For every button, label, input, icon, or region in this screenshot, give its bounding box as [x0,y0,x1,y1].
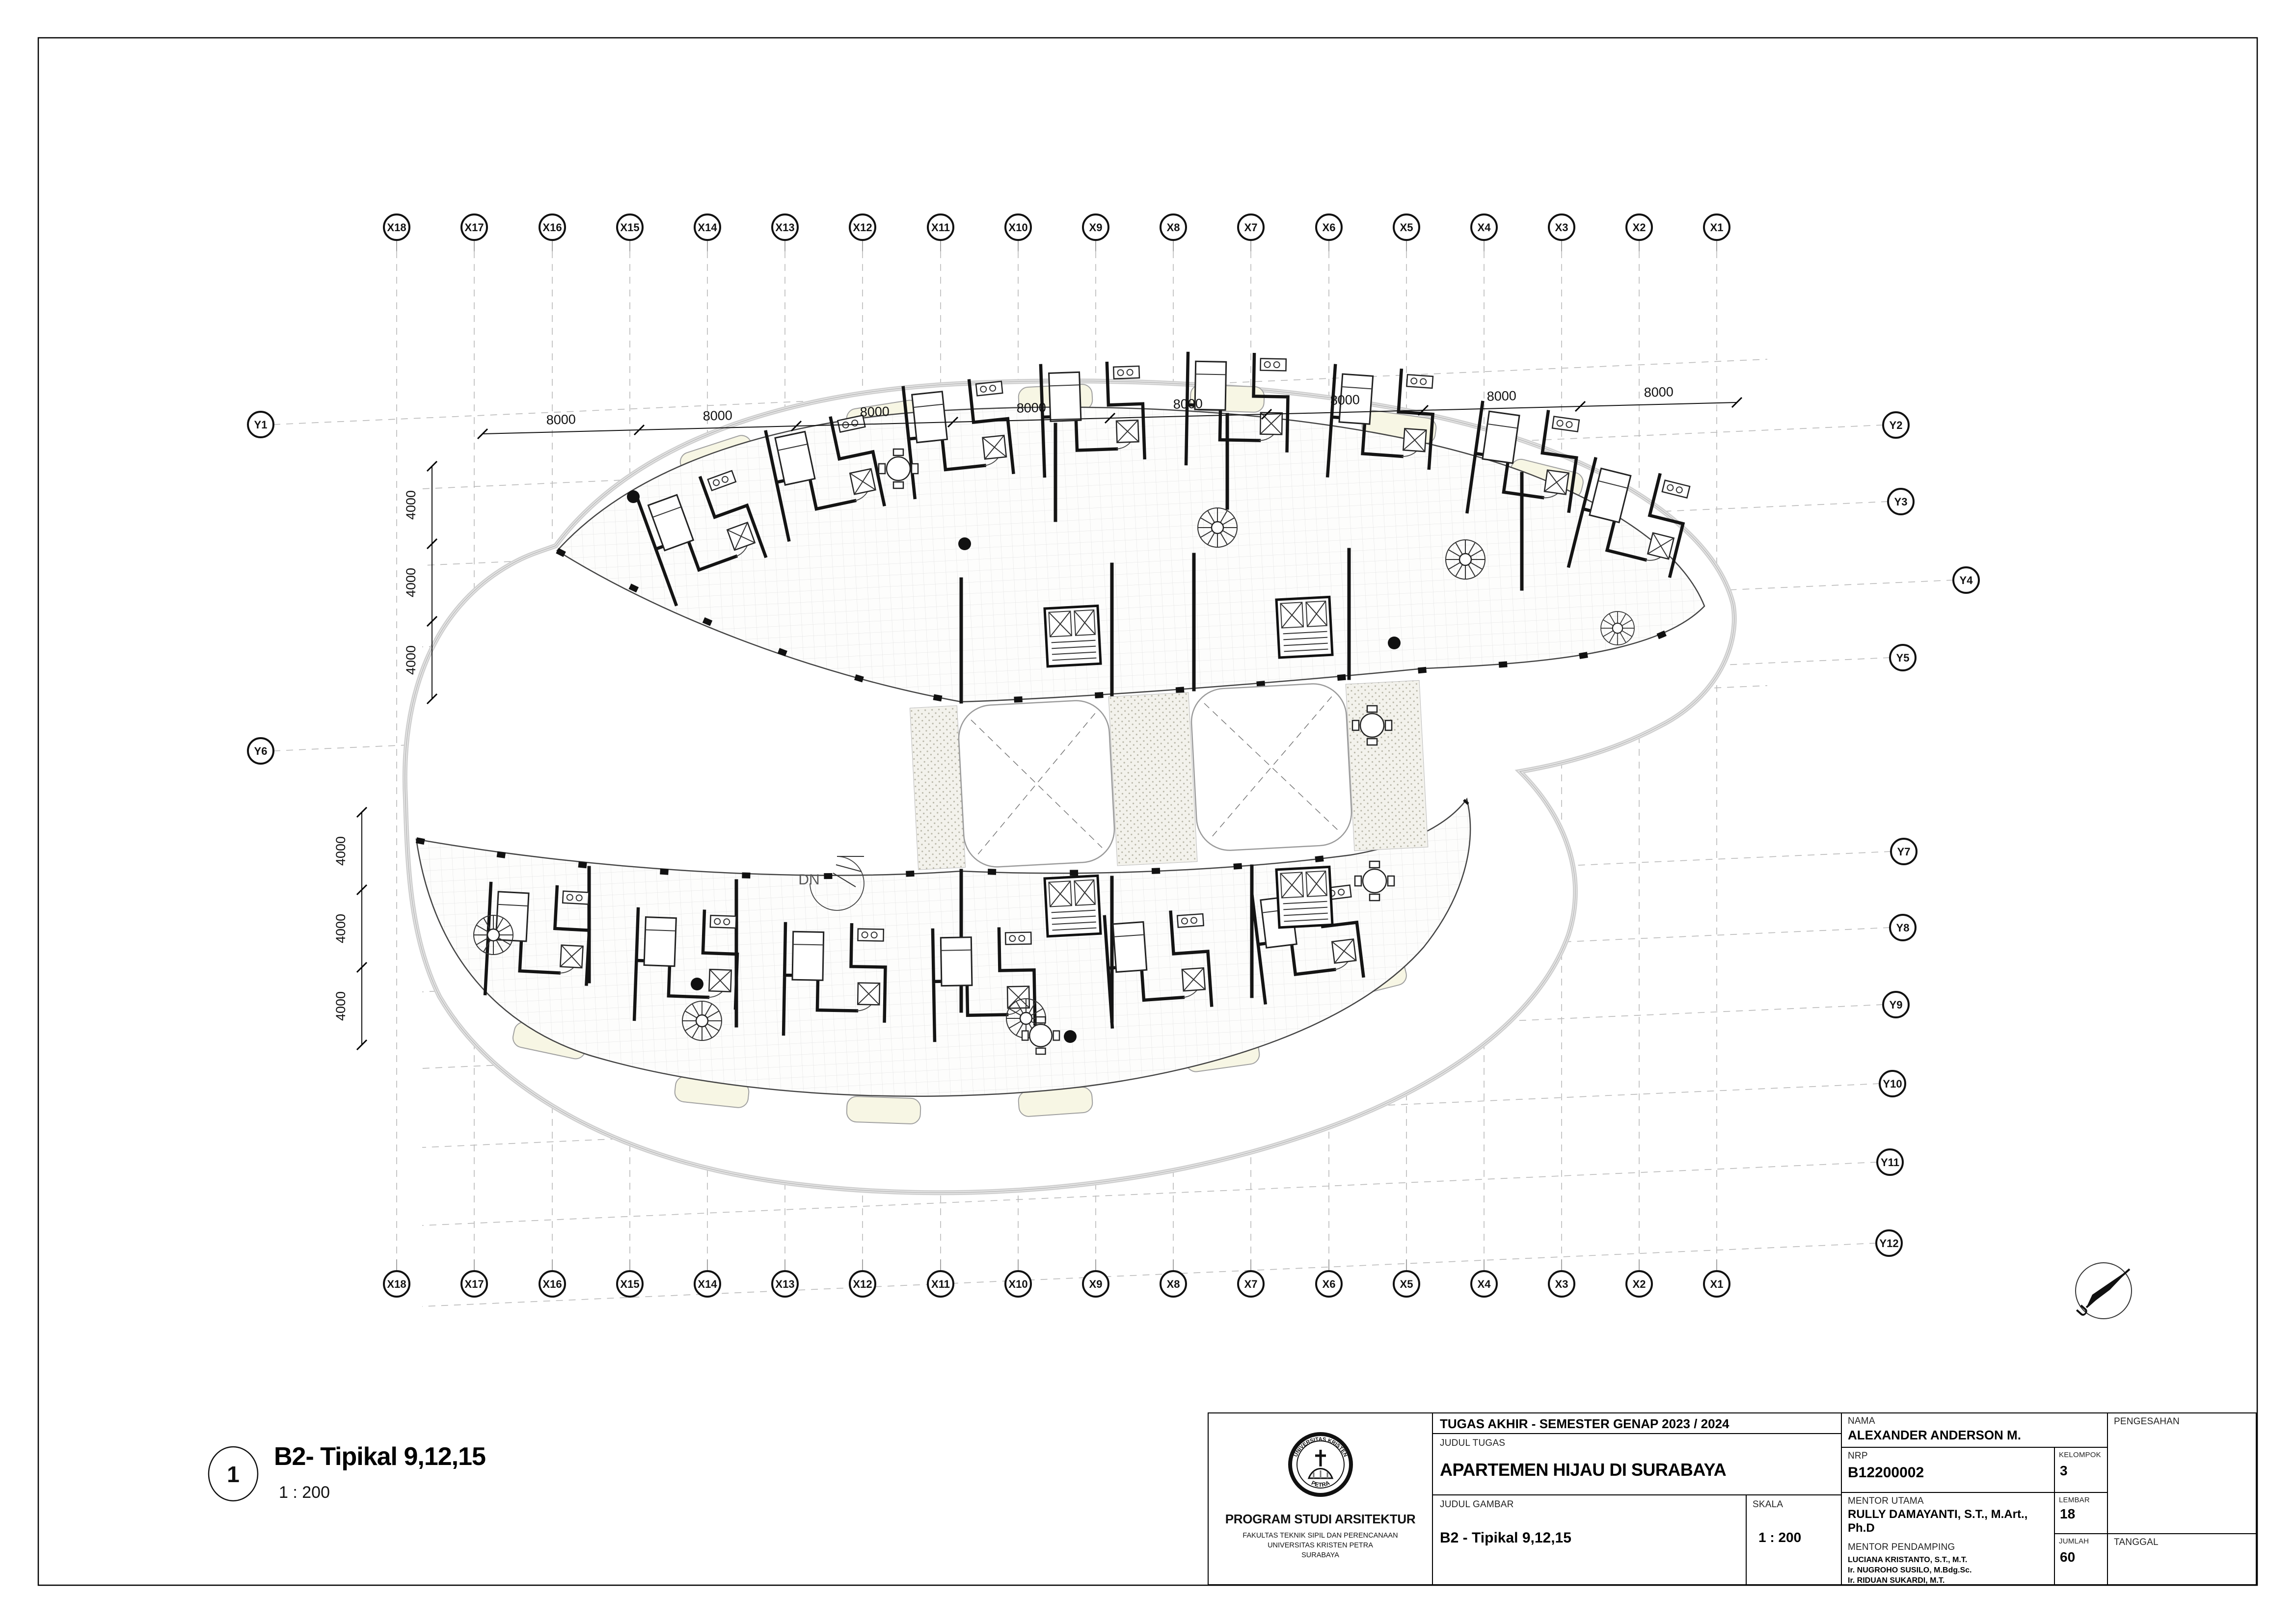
svg-text:X3: X3 [1555,221,1568,234]
svg-text:X5: X5 [1400,221,1413,234]
nama-label: NAMA [1842,1413,2107,1427]
svg-text:Y10: Y10 [1883,1078,1902,1090]
svg-text:X13: X13 [775,221,794,234]
dimension-left-upper: 4000 4000 4000 [404,461,437,704]
lembar-value: 18 [2055,1504,2108,1522]
grid-bubble-labels-top: X18X17 X16X15 X14X13 X12X11 X10X9 X8X7 X… [387,221,1723,234]
title-block-project: TUGAS AKHIR - SEMESTER GENAP 2023 / 2024… [1433,1413,1841,1584]
svg-text:X6: X6 [1323,1278,1336,1290]
drawing-sheet: DN 8000 8000 8000 8000 8000 8000 8000 80… [0,0,2296,1623]
svg-text:Y4: Y4 [1960,574,1973,586]
svg-text:X7: X7 [1244,221,1258,234]
svg-text:X8: X8 [1167,221,1180,234]
courtyard-right [1190,682,1353,852]
svg-text:Y7: Y7 [1897,846,1911,858]
svg-text:Y1: Y1 [254,419,268,431]
svg-text:X10: X10 [1008,1278,1027,1290]
university-name: UNIVERSITAS KRISTEN PETRA [1209,1541,1432,1550]
svg-text:X15: X15 [620,221,639,234]
svg-text:X1: X1 [1710,1278,1724,1290]
svg-text:X2: X2 [1633,1278,1646,1290]
semester-header: TUGAS AKHIR - SEMESTER GENAP 2023 / 2024 [1433,1413,1841,1432]
svg-text:Y2: Y2 [1890,419,1903,431]
dim-label: 4000 [333,914,348,943]
north-arrow-icon: U [2074,1263,2132,1320]
mentor-utama-label: MENTOR UTAMA [1842,1493,2054,1507]
dim-label: 8000 [1486,388,1516,403]
dim-label: 8000 [1173,396,1203,411]
svg-text:X12: X12 [853,221,872,234]
kelompok-label: KELOMPOK [2055,1448,2108,1459]
svg-text:Y11: Y11 [1881,1156,1899,1169]
svg-text:X4: X4 [1478,221,1491,234]
grid-bubble-labels-bottom: X18X17 X16X15 X14X13 X12X11 X10X9 X8X7 X… [387,1278,1723,1290]
judul-tugas-value: APARTEMEN HIJAU DI SURABAYA [1433,1449,1841,1480]
dim-label: 4000 [404,490,418,520]
mentor-pendamping-1: LUCIANA KRISTANTO, S.T., M.T. [1848,1555,2054,1565]
plan-canvas: DN 8000 8000 8000 8000 8000 8000 8000 80… [0,0,2296,1623]
courtyard-left [957,699,1116,869]
svg-text:X18: X18 [387,1278,406,1290]
nama-value: ALEXANDER ANDERSON M. [1842,1427,2107,1443]
svg-text:X4: X4 [1478,1278,1491,1290]
grid-bubbles-top [384,214,1729,240]
svg-text:X11: X11 [931,1278,950,1290]
dim-label: 8000 [1330,392,1360,407]
grid-bubbles-bottom [384,1271,1729,1297]
mentor-pendamping-3: Ir. RIDUAN SUKARDI, M.T. [1848,1575,2054,1586]
jumlah-value: 60 [2055,1545,2108,1565]
grid-bubbles-left: Y1 Y6 [248,412,273,764]
svg-text:X11: X11 [931,221,950,234]
svg-text:X1: X1 [1710,221,1724,234]
title-block-approval: PENGESAHAN TANGGAL [2107,1413,2258,1584]
mentor-pendamping-label: MENTOR PENDAMPING [1842,1535,2054,1553]
svg-text:X14: X14 [698,221,717,234]
lembar-label: LEMBAR [2055,1493,2108,1504]
svg-text:X13: X13 [775,1278,794,1290]
svg-text:X17: X17 [464,221,484,234]
drawing-scale: 1 : 200 [279,1483,330,1502]
drawing-title-group: 1 B2- Tipikal 9,12,15 1 : 200 [209,1442,486,1502]
svg-text:X16: X16 [542,221,562,234]
svg-text:X5: X5 [1400,1278,1413,1290]
svg-text:X10: X10 [1008,221,1027,234]
svg-text:Y9: Y9 [1890,999,1903,1011]
mentor-pendamping-2: Ir. NUGROHO SUSILO, M.Bdg.Sc. [1848,1565,2054,1575]
svg-text:Y12: Y12 [1879,1237,1898,1250]
university-seal-icon: UNIVERSITAS KRISTEN PETRA [1209,1413,1433,1507]
drawing-number: 1 [227,1462,240,1487]
skala-label: SKALA [1747,1495,1841,1510]
dim-label: 8000 [1644,384,1674,399]
dimension-left-lower: 4000 4000 4000 [333,807,367,1050]
svg-text:X2: X2 [1633,221,1646,234]
pengesahan-label: PENGESAHAN [2108,1413,2258,1427]
svg-text:X3: X3 [1555,1278,1568,1290]
program-name: PROGRAM STUDI ARSITEKTUR [1209,1512,1432,1527]
svg-text:X6: X6 [1323,221,1336,234]
dim-label: 4000 [333,836,348,866]
drawing-title: B2- Tipikal 9,12,15 [274,1442,486,1471]
nrp-value: B12200002 [1842,1462,2054,1481]
svg-text:Y6: Y6 [254,745,268,757]
dim-label: 8000 [1016,400,1046,415]
dim-label: 4000 [404,645,418,675]
svg-text:X14: X14 [698,1278,717,1290]
judul-tugas-label: JUDUL TUGAS [1433,1434,1841,1449]
faculty-name: FAKULTAS TEKNIK SIPIL DAN PERENCANAAN [1209,1531,1432,1541]
svg-text:X18: X18 [387,221,406,234]
dim-label: 4000 [333,991,348,1021]
nrp-label: NRP [1842,1448,2054,1462]
svg-text:Y5: Y5 [1896,652,1910,664]
title-block-institution: UNIVERSITAS KRISTEN PETRA PROGRAM STUDI … [1209,1413,1433,1584]
svg-text:Y3: Y3 [1894,496,1908,508]
dim-label: 8000 [546,412,576,427]
judul-gambar-label: JUDUL GAMBAR [1433,1495,1746,1510]
svg-text:X17: X17 [464,1278,484,1290]
mentor-utama-value: RULLY DAMAYANTI, S.T., M.Art., Ph.D [1842,1507,2054,1535]
grid-bubbles-right: Y2 Y3 Y4 Y5 Y7 Y8 Y9 Y10 Y11 Y12 [1876,412,1979,1256]
judul-gambar-value: B2 - Tipikal 9,12,15 [1433,1510,1746,1546]
kelompok-value: 3 [2055,1459,2108,1479]
svg-text:X16: X16 [542,1278,562,1290]
svg-text:X15: X15 [620,1278,639,1290]
svg-text:X7: X7 [1244,1278,1258,1290]
svg-text:Y8: Y8 [1896,922,1910,934]
dim-label: 8000 [702,408,732,423]
svg-text:X9: X9 [1089,1278,1103,1290]
svg-text:X9: X9 [1089,221,1103,234]
dim-label: 8000 [860,404,890,419]
skala-value: 1 : 200 [1747,1510,1841,1545]
svg-text:X12: X12 [853,1278,872,1290]
svg-text:X8: X8 [1167,1278,1180,1290]
tanggal-label: TANGGAL [2108,1534,2258,1548]
dn-label: DN [798,872,819,888]
title-block-people: NAMA ALEXANDER ANDERSON M. NRP B12200002… [1841,1413,2107,1584]
dim-label: 4000 [404,568,418,597]
city-name: SURABAYA [1209,1550,1432,1560]
title-block: UNIVERSITAS KRISTEN PETRA PROGRAM STUDI … [1208,1412,2257,1585]
jumlah-label: JUMLAH [2055,1534,2108,1545]
